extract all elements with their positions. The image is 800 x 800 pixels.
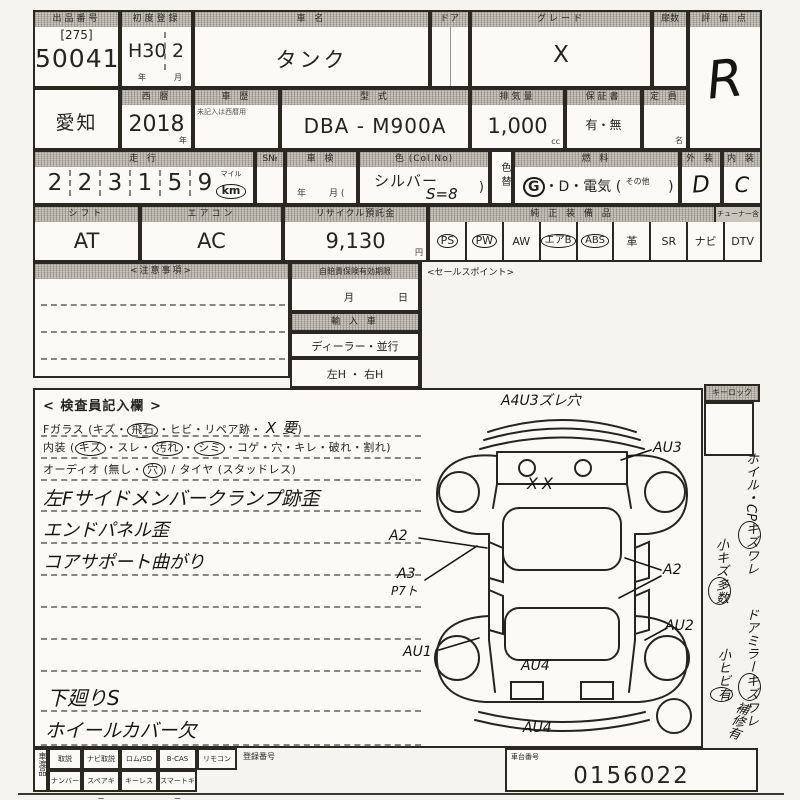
annotation-au2: AU2	[665, 618, 694, 634]
registration-number-label: 登録番号	[243, 751, 275, 762]
displacement-label: 排気量	[472, 90, 563, 105]
blank-line	[41, 606, 421, 608]
equipment-sunroof: SR	[649, 222, 686, 260]
circled-hole: 穴	[143, 463, 163, 478]
shaken-cell: 車 検 年 月 (	[285, 150, 358, 205]
interior-check-text: ・スレ・	[106, 441, 152, 454]
tuner-label: チューナー含	[714, 207, 760, 222]
exterior-grade-value: D	[681, 171, 721, 200]
exterior-grade-cell: 外 装 D	[680, 150, 722, 205]
caution-notes-cell: <注意事項>	[33, 262, 290, 378]
history-note: 未記入は西暦用	[197, 107, 246, 117]
equipment-ps: PS	[430, 222, 465, 260]
sales-point-label: <セールスポイント>	[427, 265, 514, 278]
rom-sd-checkbox: ロム/SD	[120, 748, 158, 770]
door-cell: ドア	[430, 10, 470, 88]
fuel-gasoline-circled: G	[523, 177, 545, 197]
car-name-label: 車 名	[195, 12, 428, 27]
s-number-label: S№	[257, 152, 283, 167]
insurance-expiry-label: 自賠責保険有効期限	[292, 264, 418, 279]
mileage-digit: 2	[41, 170, 71, 196]
number-plate-checkbox: ナンバー	[48, 770, 82, 792]
equipment-abs: ABS	[576, 222, 613, 260]
model-code-value: DBA - M900A	[282, 114, 468, 138]
insurance-expiry-cell: 自賠責保険有効期限 月 日	[290, 262, 420, 312]
capacity-cell: 定 員 名	[642, 88, 688, 150]
score-cell: 評 価 点 R	[688, 10, 762, 150]
grade-cell: グレード X	[470, 10, 652, 88]
blank-line	[41, 358, 285, 360]
circled-scratch: キズ	[75, 441, 106, 456]
score-value: R	[687, 47, 763, 114]
car-name-cell: 車 名 タンク	[193, 10, 430, 88]
handwritten-note-wheelcover: ホイールカバー欠	[45, 716, 196, 743]
doors-count-label: 扉数	[654, 12, 686, 27]
blank-line	[41, 304, 285, 306]
year-unit: 年	[179, 135, 187, 146]
circled-kizu: キズ	[738, 673, 761, 701]
annotation-xx-hood: XX	[527, 474, 557, 493]
rule-line	[41, 542, 421, 544]
first-registration-label: 初度登録	[122, 12, 191, 27]
recycle-fee-label: リサイクル預託金	[285, 207, 426, 222]
color-number-value: S=8	[426, 185, 458, 203]
keyless-checkbox: キーレス	[120, 770, 158, 792]
interior-grade-value: C	[724, 173, 760, 197]
displacement-value: 1,000	[472, 114, 563, 138]
sheet-bottom-edge	[18, 793, 784, 795]
spare-key-checkbox: スペアキー	[82, 770, 120, 792]
km-unit-circled: km	[216, 184, 247, 199]
fuel-label: 燃 料	[515, 152, 678, 167]
warranty-cell: 保証書 有・無	[565, 88, 642, 150]
mileage-label: 走 行	[35, 152, 253, 167]
shift-cell: シフト AT	[33, 205, 140, 262]
fuel-options: ・D・電気 (	[545, 179, 622, 195]
aircon-value: AC	[142, 229, 281, 253]
handwritten-note-coresupport: コアサポート曲がり	[43, 548, 205, 574]
key-lock-header: キーロック	[704, 384, 760, 402]
audio-check-text: ) / タイヤ (スタッドレス)	[163, 463, 297, 476]
fuel-value: G・D・電気 ( その他 )	[523, 176, 674, 197]
exterior-grade-label: 外 装	[682, 152, 720, 167]
divider	[164, 32, 166, 70]
chassis-number-cell: 車台番号 0156022	[505, 748, 758, 792]
handwritten-note-underbody: 下廻りS	[47, 682, 120, 711]
inspector-column-title: < 検査員記入欄 >	[43, 395, 162, 414]
equipment-airbag: エアB	[539, 222, 576, 260]
import-type-cell: ディーラー・並行	[290, 332, 420, 358]
rule-line	[41, 457, 421, 459]
smart-key-checkbox: スマートキー	[158, 770, 197, 792]
first-registration-year: H30	[128, 40, 166, 62]
rule-line	[41, 710, 421, 712]
first-registration-month: 2	[172, 40, 184, 62]
annotation-a3: A3	[397, 566, 415, 582]
fuel-cell: 燃 料 G・D・電気 ( その他 )	[513, 150, 680, 205]
recycle-fee-cell: リサイクル預託金 9,130 円	[283, 205, 428, 262]
sidebar-note-small-scratches: 小キズ多数	[708, 538, 731, 648]
sales-point-area: <セールスポイント>	[420, 262, 705, 388]
interior-grade-cell: 内 装 C	[722, 150, 762, 205]
rule-line	[41, 744, 421, 746]
handle-position-value: 左H ・ 右H	[292, 366, 418, 382]
paren-close: )	[479, 180, 484, 195]
rule-line	[41, 510, 421, 512]
car-damage-diagram: A4U3ズレ穴 XX AU3 A2 A3 P7ト AU1 A2 AU2 AU4 …	[385, 390, 703, 746]
note-text: ドアミラー	[743, 608, 758, 673]
year-unit: 年	[138, 72, 146, 83]
equipment-cell: 純 正 装 備 品 チューナー含 PS PW AW エアB ABS 革 SR ナ…	[428, 205, 762, 262]
note-text: 小ヒビ	[715, 648, 730, 687]
fuel-paren-close: )	[668, 179, 673, 195]
sidebar-note-wheel-cp: ホイル・CPキズワレ	[738, 452, 761, 612]
equipment-aw: AW	[502, 222, 539, 260]
blank-line	[41, 670, 421, 672]
displacement-cell: 排気量 1,000 cc	[470, 88, 565, 150]
chassis-number-value: 0156022	[507, 763, 756, 789]
note-text: 小キズ	[713, 538, 728, 577]
note-text: ワレ	[743, 549, 758, 575]
prefecture-value: 愛知	[35, 108, 118, 135]
auction-number-value: 50041	[35, 44, 118, 73]
handover-items-label: 車渡品	[37, 752, 48, 776]
color-change-cell: 色替	[490, 150, 513, 205]
door-label: ドア	[432, 12, 468, 27]
recycle-fee-value: 9,130	[285, 229, 426, 253]
handle-position-cell: 左H ・ 右H	[290, 358, 420, 388]
interior-check-line: 内装 (キズ・スレ・汚れ・シミ・コゲ・穴・キレ・破れ・割れ)	[43, 439, 423, 456]
annotation-a2-left: A2	[389, 528, 407, 544]
mileage-digits: 2 2 3 1 5 9	[41, 170, 219, 196]
circled-kizu: キズ	[738, 521, 761, 549]
mileage-digit: 1	[131, 170, 161, 196]
handwritten-note-endpanel: エンドパネル歪	[43, 516, 169, 542]
doors-count-cell: 扉数	[652, 10, 688, 88]
grade-label: グレード	[472, 12, 650, 27]
car-name-value: タンク	[195, 44, 428, 74]
color-label: 色 (Col.No)	[360, 152, 488, 167]
warranty-label: 保証書	[567, 90, 640, 105]
model-code-label: 型 式	[282, 90, 468, 105]
rule-line	[41, 574, 421, 576]
calendar-year-label: 西 暦	[122, 90, 191, 105]
audio-check-text: オーディオ (無し・	[43, 463, 143, 476]
handwritten-note-sidemember: 左Fサイドメンバークランプ跡歪	[43, 484, 319, 511]
shaken-year-unit: 年	[297, 186, 306, 199]
capacity-label: 定 員	[644, 90, 686, 105]
caution-notes-label: <注意事項>	[35, 264, 288, 279]
first-registration-cell: 初度登録 H30 2 年 月	[120, 10, 193, 88]
equipment-leather: 革	[612, 222, 649, 260]
annotation-a4u3-zure-hole: A4U3ズレ穴	[501, 390, 581, 410]
score-label: 評 価 点	[690, 12, 760, 27]
annotation-au4-gate: AU4	[521, 658, 550, 674]
color-change-label: 色替	[497, 162, 512, 190]
blank-line	[41, 331, 285, 333]
mileage-digit: 5	[161, 170, 191, 196]
cc-unit: cc	[551, 137, 560, 146]
mileage-unit: マイル km	[212, 169, 250, 199]
aircon-cell: エアコン AC	[140, 205, 283, 262]
circled-stain: シミ	[194, 441, 225, 456]
audio-tire-check-line: オーディオ (無し・穴) / タイヤ (スタッドレス)	[43, 461, 423, 478]
annotation-a3-sub: P7ト	[391, 582, 418, 599]
navi-manual-checkbox: ナビ取説	[82, 748, 120, 770]
annotation-au4-bumper: AU4	[523, 720, 552, 736]
handover-items-cell: 車渡品	[33, 748, 48, 792]
interior-check-text: ・コゲ・穴・キレ・破れ・割れ)	[225, 441, 391, 454]
capacity-unit: 名	[675, 135, 683, 146]
equipment-navi: ナビ	[686, 222, 723, 260]
model-code-cell: 型 式 DBA - M900A	[280, 88, 470, 150]
key-lock-box	[704, 402, 754, 456]
fuel-other-label: その他	[626, 177, 650, 186]
rule-line	[41, 479, 421, 481]
yen-unit: 円	[415, 247, 423, 258]
circled-dirt: 汚れ	[152, 441, 183, 456]
aircon-label: エアコン	[142, 207, 281, 222]
mileage-digit: 3	[101, 170, 131, 196]
equipment-label: 純 正 装 備 品	[430, 207, 760, 222]
manual-checkbox: 取説	[48, 748, 82, 770]
day-label: 日	[398, 289, 408, 304]
mileage-digit: 2	[71, 170, 101, 196]
history-label: 車 歴	[195, 90, 278, 105]
color-cell: 色 (Col.No) シルバー S=8 )	[358, 150, 490, 205]
import-car-header: 輸 入 車	[290, 312, 420, 332]
interior-check-text: ・	[183, 441, 195, 454]
grade-value: X	[472, 42, 650, 68]
shaken-month-unit: 月 (	[329, 186, 344, 199]
circled-ari: 有	[710, 687, 733, 702]
calendar-year-cell: 西 暦 2018 年	[120, 88, 193, 150]
divider	[450, 27, 451, 86]
equipment-dtv: DTV	[723, 222, 760, 260]
auction-number-cell: 出品番号 [275] 50041	[33, 10, 120, 88]
auction-number-label: 出品番号	[35, 12, 118, 27]
history-cell: 車 歴 未記入は西暦用	[193, 88, 280, 150]
note-text: ホイル・CP	[743, 452, 758, 521]
remote-checkbox: リモコン	[197, 748, 237, 770]
annotation-au3: AU3	[653, 440, 682, 456]
auction-sheet: 出品番号 [275] 50041 初度登録 H30 2 年 月 車 名 タンク …	[0, 0, 800, 800]
interior-check-text: 内装 (	[43, 441, 75, 454]
calendar-year-value: 2018	[122, 112, 191, 137]
equipment-pw: PW	[465, 222, 502, 260]
month-label: 月	[344, 289, 354, 304]
bcas-checkbox: B-CAS	[158, 748, 197, 770]
interior-grade-label: 内 装	[724, 152, 760, 167]
month-unit: 月	[174, 72, 182, 83]
auction-number-bracket: [275]	[35, 28, 118, 42]
shift-label: シフト	[35, 207, 138, 222]
mile-unit-label: マイル	[212, 169, 250, 179]
chassis-number-label: 車台番号	[511, 752, 539, 762]
annotation-a2-right: A2	[663, 562, 681, 578]
circled-many: 多数	[708, 577, 731, 605]
mileage-cell: 走 行 2 2 3 1 5 9 マイル km	[33, 150, 255, 205]
warranty-value: 有・無	[567, 116, 640, 133]
prefecture-cell: 愛知	[33, 88, 120, 150]
import-type-value: ディーラー・並行	[292, 338, 418, 354]
rule-line	[41, 435, 421, 437]
equipment-items: PS PW AW エアB ABS 革 SR ナビ DTV	[430, 222, 760, 260]
shaken-label: 車 検	[287, 152, 356, 167]
shift-value: AT	[35, 229, 138, 253]
blank-line	[41, 638, 421, 640]
annotation-au1: AU1	[403, 644, 432, 660]
s-number-cell: S№	[255, 150, 285, 205]
